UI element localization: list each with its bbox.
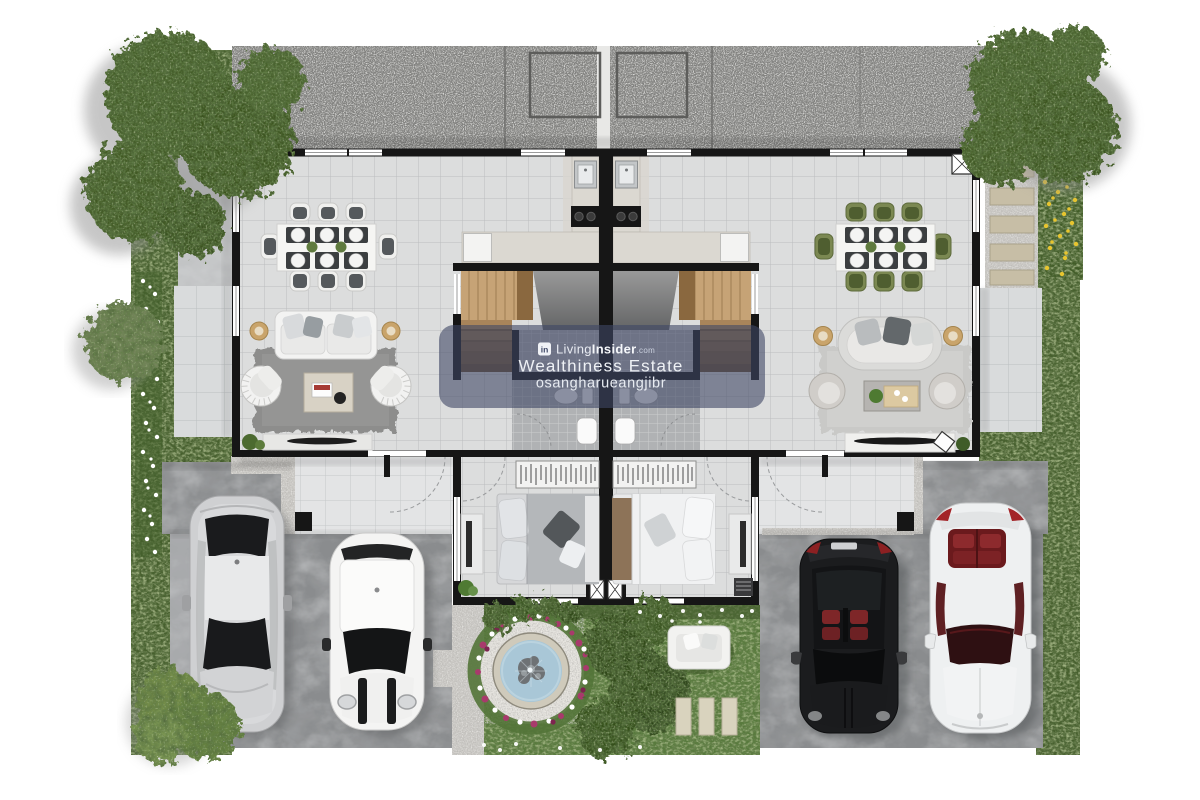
svg-text:Wealthiness Estate: Wealthiness Estate (518, 357, 683, 376)
svg-text:osangharueangjibr: osangharueangjibr (536, 376, 666, 392)
svg-text:in: in (541, 345, 549, 355)
